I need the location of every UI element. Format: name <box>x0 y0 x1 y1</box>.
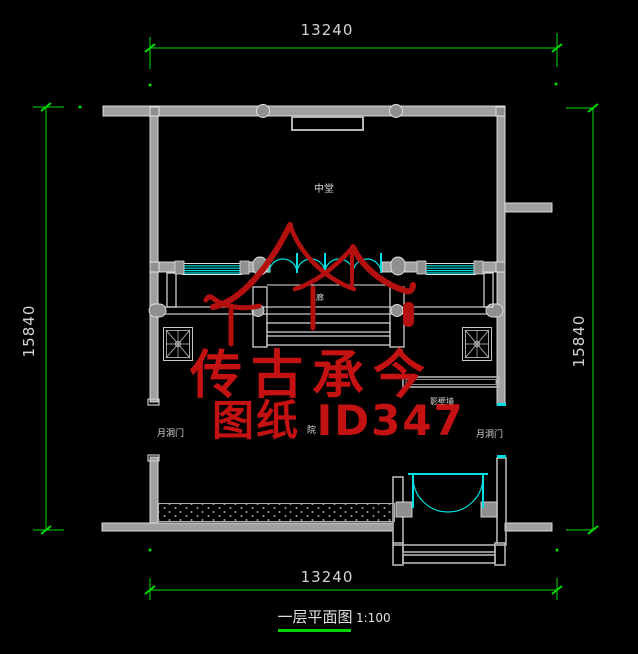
window-left <box>175 261 249 275</box>
colonnade-beam <box>149 304 503 317</box>
bottom-wall-left <box>102 523 393 531</box>
column <box>391 257 405 275</box>
floorplan-canvas: 13240 13240 15840 15840 中堂 廊 院 月洞门 月洞门 影… <box>0 0 638 654</box>
title-underline <box>278 629 351 632</box>
entry-plaque <box>292 117 363 130</box>
left-wall-mid <box>150 271 158 402</box>
watermark-sheet-id-text: 图纸 ID347 <box>212 387 465 448</box>
right-wall-protrusion <box>505 203 552 212</box>
column-base-left <box>164 328 193 361</box>
right-wall-upper <box>497 116 505 263</box>
left-wall-lower <box>150 457 158 523</box>
column <box>257 105 270 118</box>
gate-step <box>403 555 495 563</box>
perimeter-walls <box>102 106 552 531</box>
column <box>390 105 403 118</box>
right-dimension-label: 15840 <box>570 304 588 378</box>
floorplan-drawing <box>0 0 638 654</box>
room-label-moon-gate-left: 月洞门 <box>157 426 184 439</box>
drawing-title: 一层平面图 <box>276 606 354 627</box>
gate-door-arcs <box>408 474 488 512</box>
top-dimension-label: 13240 <box>290 21 364 39</box>
gate-step <box>403 545 495 552</box>
room-label-middle-hall: 中堂 <box>314 180 334 195</box>
window-right <box>417 261 483 275</box>
left-wall-upper <box>150 116 158 263</box>
paving-hatch-strip <box>158 503 395 522</box>
column-base-right <box>463 328 492 361</box>
gate-right-pillar <box>497 458 506 545</box>
drawing-scale: 1:100 <box>356 611 391 625</box>
gate-jamb <box>396 502 412 517</box>
top-wall <box>103 106 505 116</box>
room-label-moon-gate-right: 月洞门 <box>476 427 503 440</box>
left-dimension-label: 15840 <box>20 294 38 368</box>
bottom-wall-right <box>505 523 552 531</box>
room-label-corridor: 廊 <box>316 292 324 303</box>
bottom-dimension-label: 13240 <box>290 568 364 586</box>
